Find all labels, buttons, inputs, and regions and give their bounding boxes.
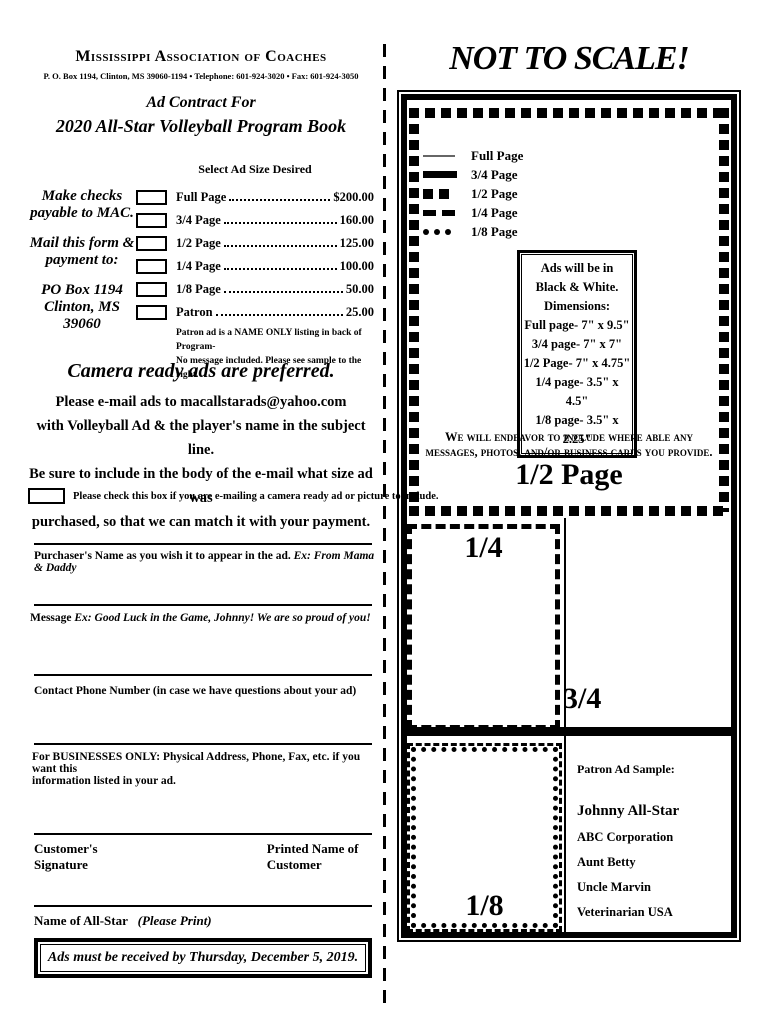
patron-sample-name: ABC Corporation xyxy=(577,830,735,845)
half-page-border-bottom xyxy=(409,506,729,516)
ad-option-price: 25.00 xyxy=(346,305,374,320)
legend-label: 1/4 Page xyxy=(471,205,518,221)
message-label: Message Ex: Good Luck in the Game, Johnn… xyxy=(30,612,376,624)
dimensions-box: Ads will be in Black & White. Dimensions… xyxy=(517,250,637,458)
patron-sample-name: Aunt Betty xyxy=(577,855,735,870)
ad-option-price: 125.00 xyxy=(340,236,374,251)
patron-ad-sample: Patron Ad Sample: Johnny All-Star ABC Co… xyxy=(577,762,735,920)
dimensions-text: Ads will be in Black & White. Dimensions… xyxy=(521,254,633,454)
legend-label: 1/8 Page xyxy=(471,224,518,240)
half-page-checkbox[interactable] xyxy=(136,236,167,251)
ad-option-label: 1/8 Page xyxy=(176,282,221,297)
ad-option-row: 1/2 Page 125.00 xyxy=(136,232,374,255)
camera-ready-checkbox[interactable] xyxy=(28,488,65,504)
payment-line: payable to MAC. xyxy=(28,205,136,222)
payment-line: Mail this form & xyxy=(28,235,136,252)
purchaser-name-label: Purchaser's Name as you wish it to appea… xyxy=(34,550,380,574)
dims-line: Full page- 7" x 9.5" xyxy=(523,316,631,335)
ad-option-price: 100.00 xyxy=(340,259,374,274)
ad-size-diagram-panel: NOT TO SCALE! Full Page 3/4 Page xyxy=(397,40,741,78)
ad-option-label: 1/4 Page xyxy=(176,259,221,274)
half-page-squares-icon xyxy=(423,189,463,199)
allstar-label: Name of All-Star (Please Print) xyxy=(34,913,380,929)
dims-line: 3/4 page- 7" x 7" xyxy=(523,335,631,354)
legend-label: 3/4 Page xyxy=(471,167,518,183)
message-label-text: Message xyxy=(30,612,72,624)
printed-name-label: Printed Name of Customer xyxy=(267,841,372,873)
organization-name: Mississippi Association of Coaches xyxy=(28,48,374,66)
eighth-page-label: 1/8 xyxy=(416,889,553,923)
email-instruction-line: Please e-mail ads to macallstarads@yahoo… xyxy=(28,390,374,414)
allstar-name-line[interactable] xyxy=(34,905,372,907)
payment-line: Make checks xyxy=(28,188,136,205)
ad-option-row: 1/4 Page 100.00 xyxy=(136,255,374,278)
half-page-border-top xyxy=(409,108,729,118)
allstar-label-text: Name of All-Star xyxy=(34,913,128,928)
ad-size-legend: Full Page 3/4 Page 1/2 Page 1/4 Page xyxy=(423,146,523,241)
endeavor-line: We will endeavor to include where able a… xyxy=(407,430,731,445)
patron-note-line: Patron ad is a NAME ONLY listing in back… xyxy=(176,326,376,354)
dims-line: 1/2 Page- 7" x 4.75" xyxy=(523,354,631,373)
eighth-page-checkbox[interactable] xyxy=(136,282,167,297)
legend-row: 1/2 Page xyxy=(423,184,523,203)
email-instruction-line: purchased, so that we can match it with … xyxy=(28,510,374,534)
not-to-scale-title: NOT TO SCALE! xyxy=(397,40,741,78)
quarter-page-checkbox[interactable] xyxy=(136,259,167,274)
allstar-hint-text: (Please Print) xyxy=(138,913,212,928)
dims-line: Dimensions: xyxy=(523,297,631,316)
eighth-page-dots-icon xyxy=(423,229,463,235)
ad-option-label: 1/2 Page xyxy=(176,236,221,251)
email-instructions: Please e-mail ads to macallstarads@yahoo… xyxy=(28,390,374,534)
dotted-leader xyxy=(224,215,337,224)
payment-instructions: Make checks payable to MAC. Mail this fo… xyxy=(28,188,136,333)
dotted-leader xyxy=(229,192,330,201)
program-book-title: 2020 All-Star Volleyball Program Book xyxy=(28,116,374,137)
ad-size-header: Select Ad Size Desired xyxy=(136,162,374,177)
quarter-page-sample-box: 1/4 xyxy=(407,524,560,730)
phone-label: Contact Phone Number (in case we have qu… xyxy=(34,685,380,697)
spacer xyxy=(28,222,136,235)
ad-option-row: Patron 25.00 xyxy=(136,301,374,324)
spacer xyxy=(28,269,136,282)
business-line[interactable] xyxy=(34,743,372,745)
email-instruction-line: with Volleyball Ad & the player's name i… xyxy=(28,414,374,462)
dotted-leader xyxy=(216,307,343,316)
three-quarter-page-checkbox[interactable] xyxy=(136,213,167,228)
ad-option-price: 50.00 xyxy=(346,282,374,297)
payment-city: Clinton, MS 39060 xyxy=(28,299,136,333)
patron-sample-name: Veterinarian USA xyxy=(577,905,735,920)
business-label-line: information listed in your ad. xyxy=(32,775,378,787)
legend-label: Full Page xyxy=(471,148,523,164)
full-page-sample-box: Full Page 3/4 Page 1/2 Page 1/4 Page xyxy=(397,90,741,942)
purchaser-name-line[interactable] xyxy=(34,543,372,545)
ad-option-row: Full Page $200.00 xyxy=(136,186,374,209)
column-divider-line xyxy=(564,518,566,932)
purchaser-label-text: Purchaser's Name as you wish it to appea… xyxy=(34,550,291,562)
three-quarter-line-icon xyxy=(423,171,463,178)
three-quarter-page-label: 3/4 xyxy=(563,682,601,716)
payment-line: payment to: xyxy=(28,252,136,269)
legend-row: 3/4 Page xyxy=(423,165,523,184)
eighth-page-dotted-border: 1/8 xyxy=(411,747,558,928)
full-page-line-icon xyxy=(423,155,463,157)
page-divider-dashed-line xyxy=(383,44,386,1012)
ad-option-price: 160.00 xyxy=(340,213,374,228)
patron-checkbox[interactable] xyxy=(136,305,167,320)
quarter-page-label: 1/4 xyxy=(412,531,555,565)
endeavor-note: We will endeavor to include where able a… xyxy=(407,430,731,460)
signature-labels: Customer's Signature Printed Name of Cus… xyxy=(34,841,372,873)
eighth-page-sample-box: 1/8 xyxy=(407,743,562,932)
three-quarter-border-box: Full Page 3/4 Page 1/2 Page 1/4 Page xyxy=(401,94,737,938)
customer-signature-label: Customer's Signature xyxy=(34,841,119,873)
phone-line[interactable] xyxy=(34,674,372,676)
message-line[interactable] xyxy=(34,604,372,606)
dotted-leader xyxy=(224,261,337,270)
patron-sample-name: Uncle Marvin xyxy=(577,880,735,895)
quarter-page-dashes-icon xyxy=(423,210,463,216)
ad-option-row: 3/4 Page 160.00 xyxy=(136,209,374,232)
payment-po-box: PO Box 1194 xyxy=(28,282,136,299)
camera-ready-checkbox-row: Please check this box if you are e-maili… xyxy=(28,488,374,504)
signature-line[interactable] xyxy=(34,833,372,835)
contract-title: Ad Contract For xyxy=(28,94,374,112)
ad-option-label: 3/4 Page xyxy=(176,213,221,228)
ad-option-price: $200.00 xyxy=(333,190,374,205)
legend-row: 1/8 Page xyxy=(423,222,523,241)
business-label: For BUSINESSES ONLY: Physical Address, P… xyxy=(32,751,378,787)
legend-row: Full Page xyxy=(423,146,523,165)
legend-row: 1/4 Page xyxy=(423,203,523,222)
dotted-leader xyxy=(224,238,337,247)
dims-line: 1/4 page- 3.5" x 4.5" xyxy=(523,373,631,411)
deadline-box: Ads must be received by Thursday, Decemb… xyxy=(34,938,372,978)
ad-option-row: 1/8 Page 50.00 xyxy=(136,278,374,301)
ad-size-options: Full Page $200.00 3/4 Page 160.00 1/2 Pa… xyxy=(136,186,374,324)
three-quarter-page-bottom-edge xyxy=(401,727,737,736)
deadline-text: Ads must be received by Thursday, Decemb… xyxy=(40,944,366,972)
legend-label: 1/2 Page xyxy=(471,186,518,202)
dims-line: Ads will be in xyxy=(523,259,631,278)
organization-address: P. O. Box 1194, Clinton, MS 39060-1194 •… xyxy=(28,71,374,81)
dims-line: Black & White. xyxy=(523,278,631,297)
ad-option-label: Full Page xyxy=(176,190,226,205)
patron-sample-title: Patron Ad Sample: xyxy=(577,762,735,777)
ad-contract-page: Mississippi Association of Coaches P. O.… xyxy=(0,0,770,1024)
dotted-leader xyxy=(224,284,343,293)
full-page-checkbox[interactable] xyxy=(136,190,167,205)
ad-option-label: Patron xyxy=(176,305,213,320)
camera-ready-title: Camera ready ads are preferred. xyxy=(28,360,374,383)
business-label-line: For BUSINESSES ONLY: Physical Address, P… xyxy=(32,751,378,775)
patron-sample-name: Johnny All-Star xyxy=(577,803,735,820)
half-page-label: 1/2 Page xyxy=(407,458,731,492)
message-example-text: Ex: Good Luck in the Game, Johnny! We ar… xyxy=(74,612,370,624)
